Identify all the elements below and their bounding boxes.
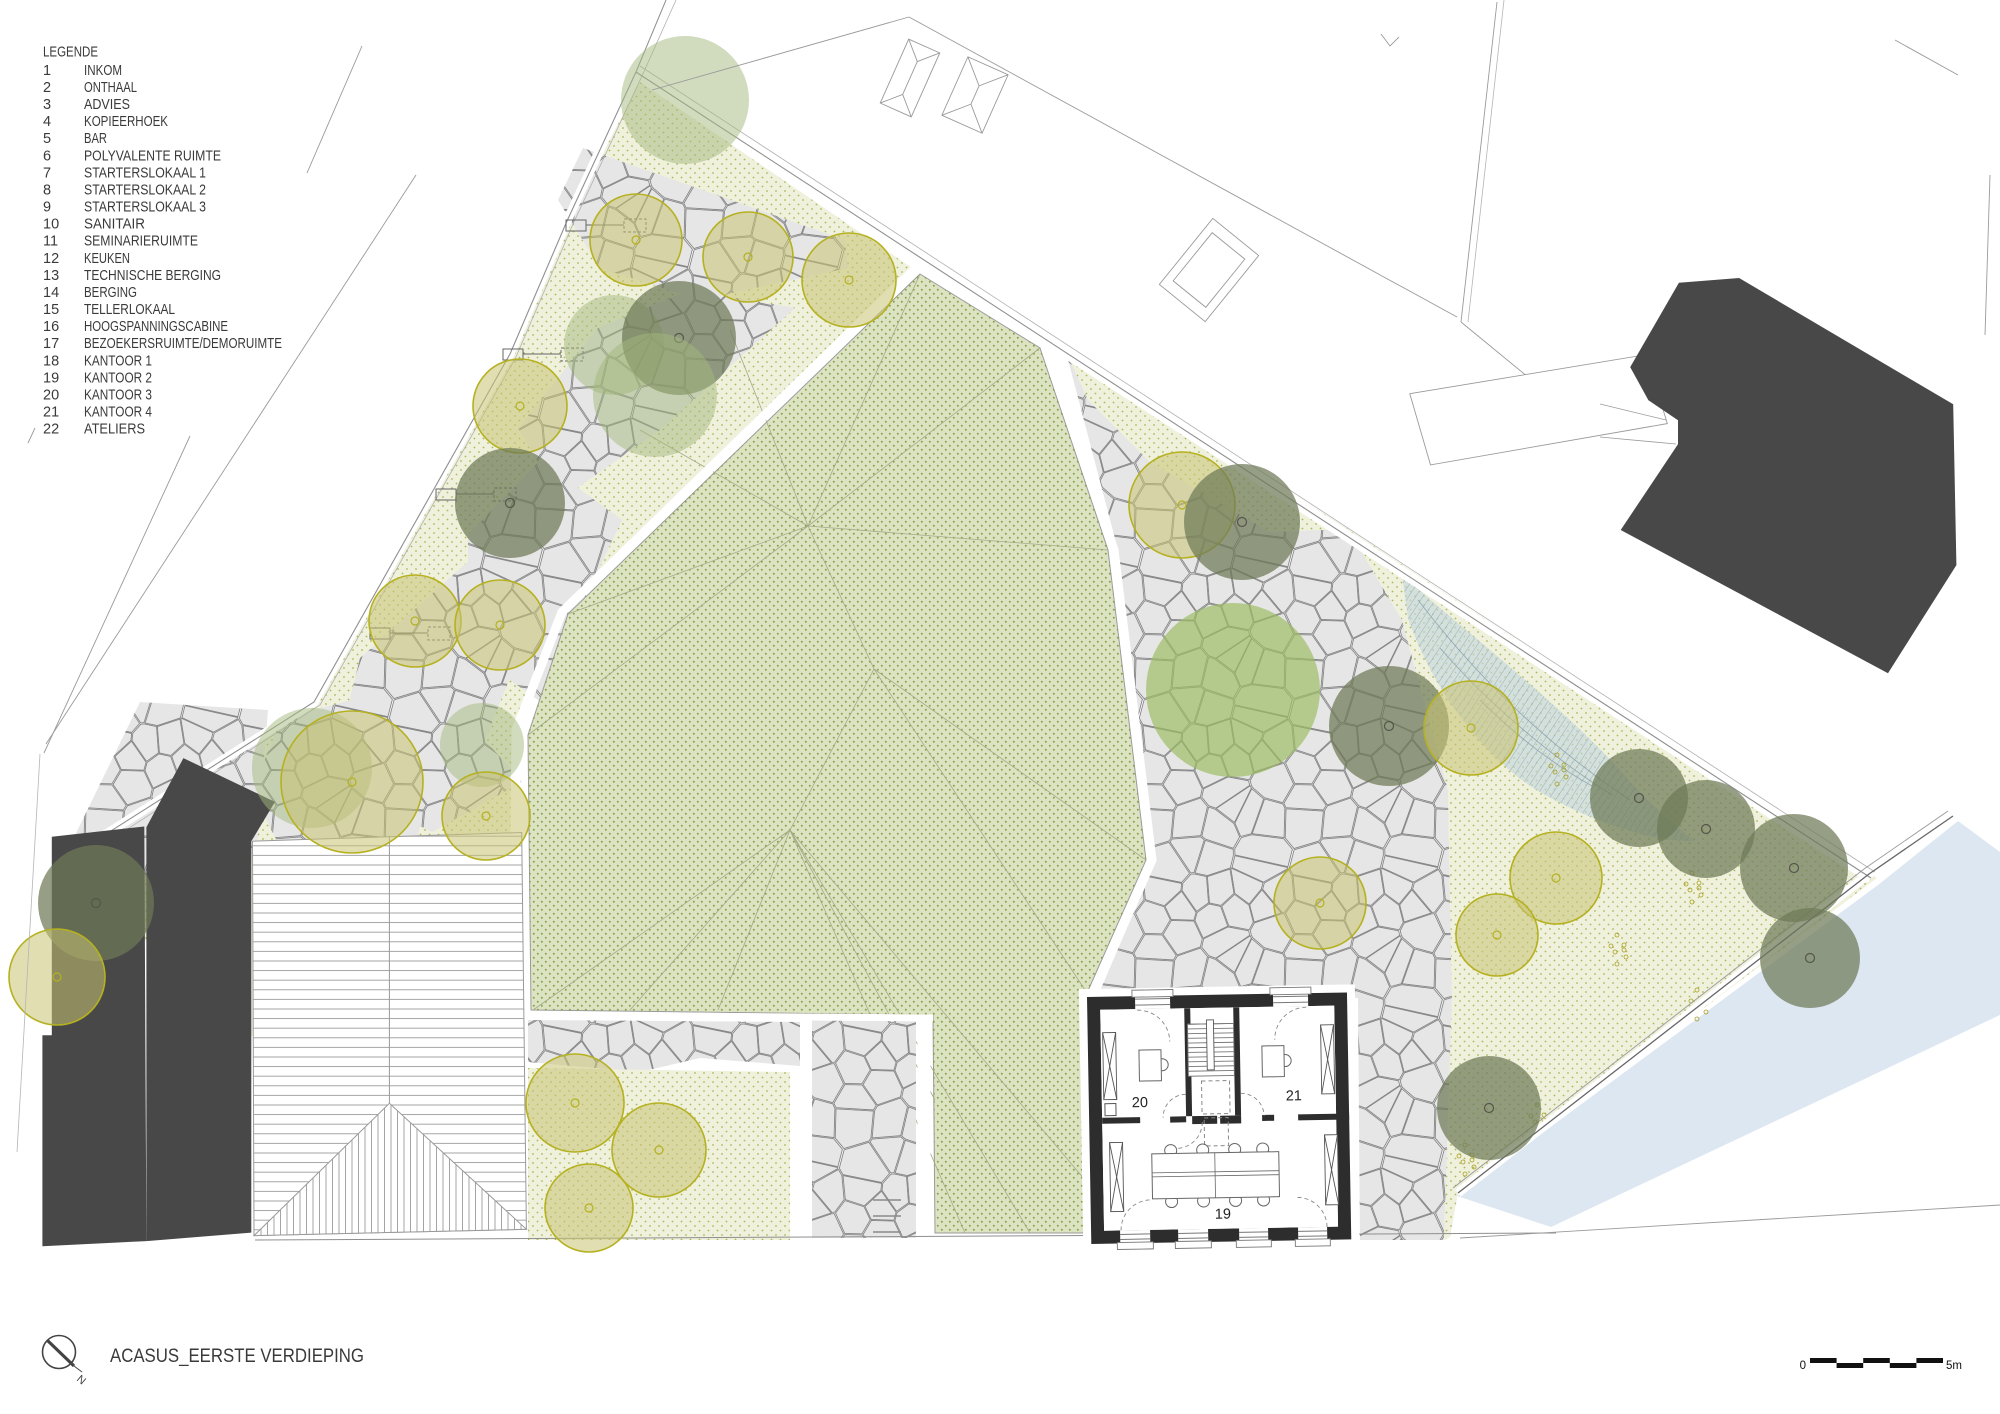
svg-text:6: 6 <box>43 148 51 164</box>
svg-text:20: 20 <box>43 387 59 403</box>
svg-text:10: 10 <box>43 217 59 233</box>
svg-text:14: 14 <box>43 285 59 301</box>
svg-text:5: 5 <box>43 131 51 147</box>
svg-text:POLYVALENTE RUIMTE: POLYVALENTE RUIMTE <box>84 148 221 164</box>
svg-text:18: 18 <box>43 353 59 369</box>
svg-text:19: 19 <box>1215 1207 1231 1223</box>
svg-text:ATELIERS: ATELIERS <box>84 422 145 438</box>
svg-text:BEZOEKERSRUIMTE/DEMORUIMTE: BEZOEKERSRUIMTE/DEMORUIMTE <box>84 336 282 352</box>
svg-text:STARTERSLOKAAL 3: STARTERSLOKAAL 3 <box>84 200 206 216</box>
svg-text:ACASUS_EERSTE VERDIEPING: ACASUS_EERSTE VERDIEPING <box>110 1345 364 1367</box>
svg-text:KANTOOR 3: KANTOOR 3 <box>84 387 152 403</box>
svg-text:STARTERSLOKAAL 2: STARTERSLOKAAL 2 <box>84 183 206 199</box>
svg-text:0: 0 <box>1800 1360 1806 1372</box>
svg-text:2: 2 <box>43 80 51 96</box>
svg-text:TECHNISCHE BERGING: TECHNISCHE BERGING <box>84 268 221 284</box>
svg-text:SEMINARIERUIMTE: SEMINARIERUIMTE <box>84 234 198 250</box>
svg-text:KOPIEERHOEK: KOPIEERHOEK <box>84 114 168 130</box>
svg-text:15: 15 <box>43 302 59 318</box>
svg-text:SANITAIR: SANITAIR <box>84 217 145 233</box>
svg-text:TELLERLOKAAL: TELLERLOKAAL <box>84 302 175 318</box>
svg-text:KEUKEN: KEUKEN <box>84 251 130 267</box>
svg-text:21: 21 <box>1286 1088 1302 1104</box>
svg-text:BERGING: BERGING <box>84 285 137 301</box>
svg-text:17: 17 <box>43 336 59 352</box>
svg-text:19: 19 <box>43 370 59 386</box>
svg-text:11: 11 <box>43 234 58 250</box>
svg-text:22: 22 <box>43 422 59 438</box>
svg-text:12: 12 <box>43 251 59 267</box>
svg-text:13: 13 <box>43 268 59 284</box>
svg-text:21: 21 <box>43 405 59 421</box>
svg-text:7: 7 <box>43 165 51 181</box>
svg-text:9: 9 <box>43 200 51 216</box>
svg-text:HOOGSPANNINGSCABINE: HOOGSPANNINGSCABINE <box>84 319 228 335</box>
svg-text:5m: 5m <box>1946 1360 1962 1372</box>
svg-text:3: 3 <box>43 97 51 113</box>
svg-text:ONTHAAL: ONTHAAL <box>84 80 137 96</box>
svg-text:16: 16 <box>43 319 59 335</box>
svg-text:STARTERSLOKAAL 1: STARTERSLOKAAL 1 <box>84 165 206 181</box>
svg-text:LEGENDE: LEGENDE <box>43 45 98 61</box>
svg-text:8: 8 <box>43 183 51 199</box>
svg-text:BAR: BAR <box>84 131 107 147</box>
svg-text:20: 20 <box>1132 1095 1148 1111</box>
svg-text:KANTOOR 2: KANTOOR 2 <box>84 370 152 386</box>
svg-text:ADVIES: ADVIES <box>84 97 130 113</box>
svg-text:1: 1 <box>43 63 51 79</box>
svg-text:KANTOOR 1: KANTOOR 1 <box>84 353 152 369</box>
svg-text:4: 4 <box>43 114 51 130</box>
svg-text:INKOM: INKOM <box>84 63 122 79</box>
svg-text:KANTOOR 4: KANTOOR 4 <box>84 405 152 421</box>
